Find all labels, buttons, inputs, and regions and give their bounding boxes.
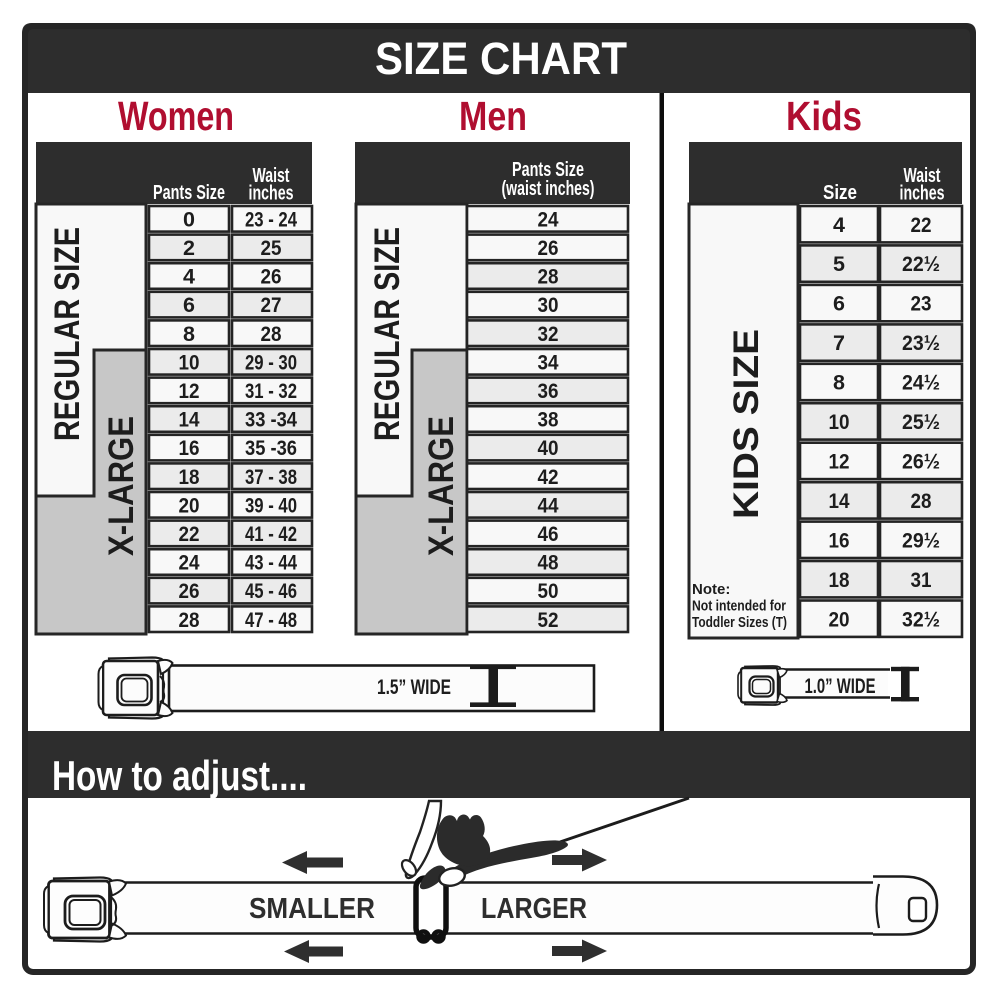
svg-text:47 - 48: 47 - 48 <box>245 608 297 632</box>
svg-text:28: 28 <box>179 608 200 632</box>
svg-text:39 - 40: 39 - 40 <box>245 493 297 517</box>
svg-text:inches: inches <box>900 183 945 205</box>
svg-text:22: 22 <box>179 522 200 546</box>
svg-text:Women: Women <box>118 93 234 139</box>
svg-text:inches: inches <box>249 183 294 205</box>
svg-text:24: 24 <box>538 207 559 231</box>
svg-text:27: 27 <box>261 293 282 317</box>
svg-text:29 - 30: 29 - 30 <box>245 350 297 374</box>
svg-text:41 - 42: 41 - 42 <box>245 522 297 546</box>
svg-text:31 - 32: 31 - 32 <box>245 379 297 403</box>
svg-text:12: 12 <box>829 450 850 474</box>
svg-text:7: 7 <box>833 331 845 355</box>
svg-text:30: 30 <box>538 293 559 317</box>
svg-text:22½: 22½ <box>902 252 940 276</box>
svg-text:40: 40 <box>538 436 559 460</box>
svg-text:Not intended for: Not intended for <box>692 598 786 615</box>
svg-text:14: 14 <box>829 489 850 513</box>
svg-text:20: 20 <box>179 493 200 517</box>
svg-text:36: 36 <box>538 379 559 403</box>
svg-text:5: 5 <box>833 252 845 276</box>
svg-text:6: 6 <box>833 292 845 316</box>
svg-text:28: 28 <box>261 322 282 346</box>
svg-text:34: 34 <box>538 350 559 374</box>
svg-text:REGULAR SIZE: REGULAR SIZE <box>48 227 87 441</box>
svg-text:26: 26 <box>538 236 559 260</box>
svg-text:Pants Size: Pants Size <box>153 182 225 204</box>
svg-text:4: 4 <box>833 213 845 237</box>
svg-text:LARGER: LARGER <box>481 893 587 925</box>
svg-text:Toddler Sizes (T): Toddler Sizes (T) <box>692 614 787 631</box>
svg-text:23: 23 <box>911 292 932 316</box>
svg-text:12: 12 <box>179 379 200 403</box>
svg-text:48: 48 <box>538 551 559 575</box>
svg-text:23 - 24: 23 - 24 <box>245 207 297 231</box>
svg-text:16: 16 <box>829 528 850 552</box>
svg-text:31: 31 <box>911 568 932 592</box>
svg-text:26: 26 <box>261 265 282 289</box>
svg-text:20: 20 <box>829 607 850 631</box>
svg-text:Men: Men <box>459 93 527 139</box>
svg-text:32½: 32½ <box>902 607 940 631</box>
svg-text:14: 14 <box>179 408 200 432</box>
svg-text:Kids: Kids <box>786 93 862 139</box>
svg-text:X-LARGE: X-LARGE <box>422 416 461 556</box>
svg-text:(waist inches): (waist inches) <box>502 178 595 200</box>
svg-text:25½: 25½ <box>902 410 940 434</box>
svg-text:18: 18 <box>829 568 850 592</box>
svg-text:Note:: Note: <box>692 581 730 598</box>
svg-text:X-LARGE: X-LARGE <box>102 416 141 556</box>
svg-text:8: 8 <box>183 322 195 346</box>
svg-text:26: 26 <box>179 579 200 603</box>
svg-text:45 - 46: 45 - 46 <box>245 579 297 603</box>
svg-text:52: 52 <box>538 608 559 632</box>
svg-text:25: 25 <box>261 236 282 260</box>
svg-text:28: 28 <box>538 265 559 289</box>
svg-text:24: 24 <box>179 551 200 575</box>
svg-text:REGULAR SIZE: REGULAR SIZE <box>368 227 407 441</box>
svg-text:23½: 23½ <box>902 331 940 355</box>
svg-text:SIZE CHART: SIZE CHART <box>375 33 627 84</box>
svg-text:24½: 24½ <box>902 371 940 395</box>
svg-text:SMALLER: SMALLER <box>249 893 375 925</box>
svg-text:29½: 29½ <box>902 528 940 552</box>
svg-text:1.5” WIDE: 1.5” WIDE <box>377 675 451 699</box>
svg-text:How to adjust....: How to adjust.... <box>52 752 307 799</box>
svg-text:10: 10 <box>829 410 850 434</box>
svg-text:4: 4 <box>183 265 195 289</box>
svg-text:35 -36: 35 -36 <box>245 436 297 460</box>
svg-text:6: 6 <box>183 293 195 317</box>
svg-text:KIDS SIZE: KIDS SIZE <box>727 329 766 519</box>
svg-text:50: 50 <box>538 579 559 603</box>
svg-text:46: 46 <box>538 522 559 546</box>
svg-text:38: 38 <box>538 408 559 432</box>
svg-text:26½: 26½ <box>902 450 940 474</box>
svg-text:42: 42 <box>538 465 559 489</box>
svg-text:1.0” WIDE: 1.0” WIDE <box>805 675 876 698</box>
svg-text:43 - 44: 43 - 44 <box>245 551 297 575</box>
svg-text:32: 32 <box>538 322 559 346</box>
svg-text:16: 16 <box>179 436 200 460</box>
svg-text:28: 28 <box>911 489 932 513</box>
svg-text:37 - 38: 37 - 38 <box>245 465 297 489</box>
svg-text:0: 0 <box>183 207 195 231</box>
svg-text:8: 8 <box>833 371 845 395</box>
svg-text:22: 22 <box>911 213 932 237</box>
svg-text:33 -34: 33 -34 <box>245 408 297 432</box>
svg-text:18: 18 <box>179 465 200 489</box>
svg-text:2: 2 <box>183 236 195 260</box>
svg-text:10: 10 <box>179 350 200 374</box>
svg-text:Size: Size <box>823 182 857 204</box>
svg-text:44: 44 <box>538 493 559 517</box>
